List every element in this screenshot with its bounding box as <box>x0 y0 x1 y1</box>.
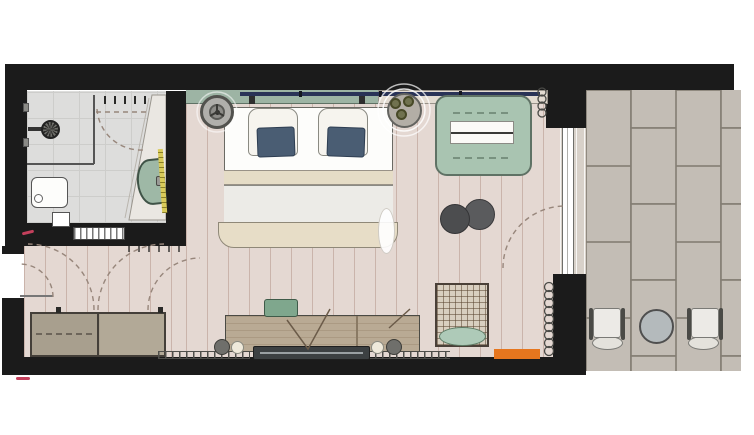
cushion-left <box>256 126 295 157</box>
shower-tray-edge <box>27 163 94 165</box>
shower-head-icon <box>41 120 60 139</box>
desk-chair <box>264 299 298 317</box>
bistro-table <box>639 309 674 344</box>
wardrobe-hinge-right <box>158 307 163 313</box>
bistro-chair-right-seat <box>691 308 719 338</box>
curtain-hook-right <box>359 96 365 104</box>
desk-lamp-left-base <box>231 341 244 354</box>
wall-vent-ticks <box>128 246 186 252</box>
foot-blanket <box>218 222 398 248</box>
wall-top <box>5 64 734 90</box>
bistro-chair-right-arm-b <box>719 308 723 340</box>
shower-valve2 <box>23 138 29 147</box>
bathroom-pocket-door <box>73 227 125 240</box>
sheet-band <box>224 170 393 185</box>
towel-hooks <box>104 96 152 104</box>
toilet <box>31 177 68 208</box>
floor-plan <box>0 0 754 435</box>
curtain-hook-left <box>249 96 255 104</box>
shower-partition-glass <box>93 95 95 164</box>
bistro-chair-left-seat <box>593 308 621 338</box>
entry-door-leaf <box>20 295 53 297</box>
wardrobe-right-section <box>100 314 164 355</box>
plant-1 <box>390 98 401 109</box>
orange-doormat <box>494 349 540 359</box>
desk-lamp-right-base <box>371 341 384 354</box>
window-mullion-2 <box>379 91 382 97</box>
wall-terrace-divider <box>553 274 586 375</box>
cushion-right <box>326 126 365 157</box>
armchair-cushion <box>439 327 486 346</box>
sofa-cushion-divider <box>451 132 513 134</box>
bistro-chair-right-back <box>688 336 719 350</box>
tv-screen-line <box>260 352 363 354</box>
sheer-curtain <box>378 208 395 254</box>
plant-3 <box>396 109 407 120</box>
toilet-flush <box>34 194 43 203</box>
wardrobe-hinge-left <box>56 307 61 313</box>
wall-left <box>5 64 27 246</box>
entry-door-opening <box>0 254 24 298</box>
pendant-lamp-dot <box>215 110 220 115</box>
red-marker-bottom <box>16 377 30 380</box>
shower-valve <box>23 103 29 112</box>
coffee-table-large <box>440 204 470 234</box>
side-shelf <box>52 212 70 227</box>
desk-lamp-left-shade <box>214 339 230 355</box>
wardrobe-divider <box>97 313 99 356</box>
duvet <box>224 185 393 222</box>
desk-lamp-right-shade <box>386 339 402 355</box>
wall-pier <box>546 90 586 128</box>
wardrobe-shelf-line <box>36 333 92 335</box>
plant-2 <box>403 96 414 107</box>
wall-entry-jamb <box>2 246 24 254</box>
window-mullion-1 <box>299 91 302 97</box>
bistro-chair-left-back <box>592 336 623 350</box>
sliding-glass-door <box>562 126 574 274</box>
bistro-chair-left-arm-b <box>621 308 625 340</box>
